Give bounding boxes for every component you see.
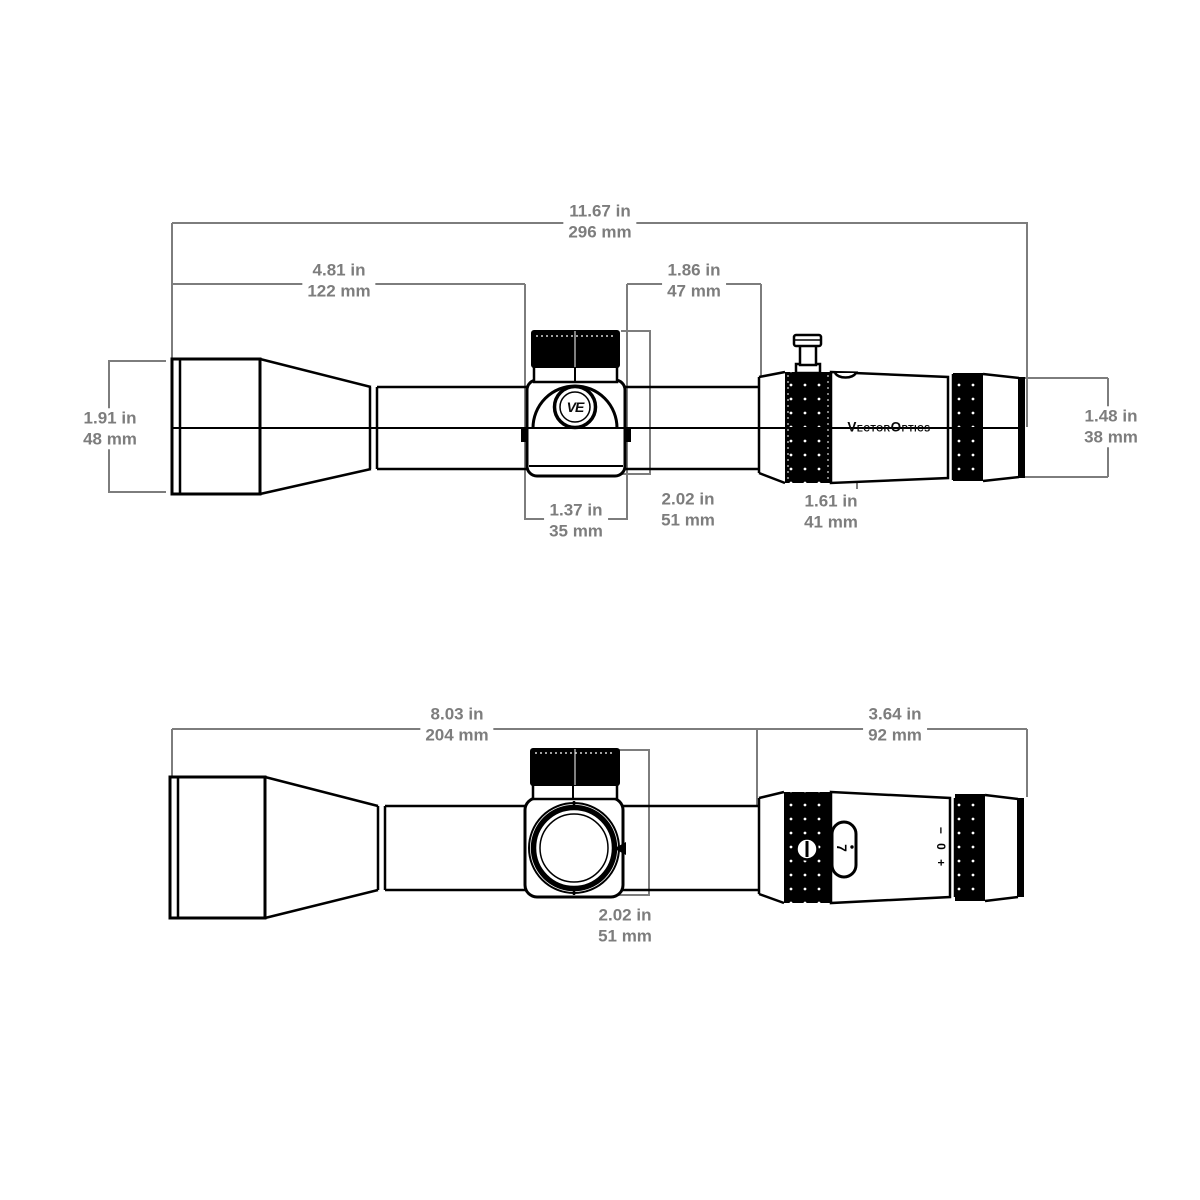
dim-label-bottom-front-length: 8.03 in 204 mm (420, 704, 493, 745)
dim-value-mm: 92 mm (868, 725, 922, 746)
dim-value-in: 1.37 in (549, 500, 603, 521)
dim-value-mm: 41 mm (804, 512, 858, 533)
dim-label-magring-width: 1.61 in 41 mm (799, 491, 863, 532)
dim-label-saddle-width: 1.37 in 35 mm (544, 500, 608, 541)
cone-bottom (759, 473, 785, 483)
bell-taper-top (260, 359, 371, 387)
ocular-cone-bottom (985, 897, 1018, 901)
dim-value-in: 1.91 in (83, 408, 137, 429)
saddle-lug (625, 429, 631, 442)
dim-value-in: 11.67 in (568, 201, 631, 222)
saddle-lug (521, 429, 527, 442)
brand-wordmark: VectorOptics (847, 420, 930, 435)
scope-dimension-drawing: 11.67 in 296 mm 4.81 in 122 mm 1.86 in 4… (0, 0, 1200, 1200)
dim-value-in: 1.61 in (804, 491, 858, 512)
dim-value-mm: 38 mm (1084, 427, 1138, 448)
magnification-number: 7 (834, 844, 850, 852)
dim-value-in: 2.02 in (598, 905, 652, 926)
objective-bell (172, 359, 260, 494)
dim-value-in: 2.02 in (661, 489, 715, 510)
dim-value-mm: 48 mm (83, 429, 137, 450)
scope-side-view (172, 330, 1025, 494)
line-art (0, 0, 1200, 1200)
dim-value-mm: 122 mm (307, 281, 370, 302)
dim-label-front-length: 4.81 in 122 mm (302, 260, 375, 301)
dim-value-in: 1.86 in (667, 260, 721, 281)
bell-taper-bottom (265, 890, 378, 918)
ocular-end-face (1017, 798, 1024, 897)
dim-value-in: 3.64 in (868, 704, 922, 725)
dim-label-mid-length: 1.86 in 47 mm (662, 260, 726, 301)
dim-label-ocular-diameter: 1.48 in 38 mm (1079, 406, 1143, 447)
bell-taper-top (265, 777, 378, 806)
diopter-ring-knurl (955, 794, 985, 901)
dim-value-mm: 47 mm (667, 281, 721, 302)
dim-value-mm: 51 mm (598, 926, 652, 947)
bell-taper-bottom (260, 469, 371, 494)
ocular-cone-top (983, 374, 1019, 378)
ocular-cone-top (985, 795, 1018, 799)
dim-label-overall-length: 11.67 in 296 mm (563, 201, 636, 242)
cone-top (759, 372, 785, 377)
cone-top (759, 792, 784, 798)
windage-turret-base (533, 784, 617, 799)
dim-label-turret-height: 2.02 in 51 mm (656, 489, 720, 530)
dim-label-bottom-rear-length: 3.64 in 92 mm (863, 704, 927, 745)
dim-value-mm: 35 mm (549, 521, 603, 542)
eyepiece-notch (835, 373, 856, 378)
dim-value-in: 4.81 in (307, 260, 370, 281)
throw-lever-stem (800, 345, 816, 365)
objective-bell (170, 777, 265, 918)
scope-top-view (170, 748, 1024, 918)
dim-value-mm: 296 mm (568, 222, 631, 243)
diopter-scale: − 0 + (934, 827, 948, 869)
dim-value-mm: 51 mm (661, 510, 715, 531)
dim-value-in: 8.03 in (425, 704, 488, 725)
dim-label-bottom-saddle-width: 2.02 in 51 mm (593, 905, 657, 946)
dim-value-in: 1.48 in (1084, 406, 1138, 427)
dim-label-objective-diameter: 1.91 in 48 mm (78, 408, 142, 449)
dim-value-mm: 204 mm (425, 725, 488, 746)
ve-logo-monogram: VE (567, 399, 584, 415)
index-dot (850, 845, 853, 848)
ocular-cone-bottom (983, 477, 1019, 481)
cone-bottom (759, 894, 784, 903)
